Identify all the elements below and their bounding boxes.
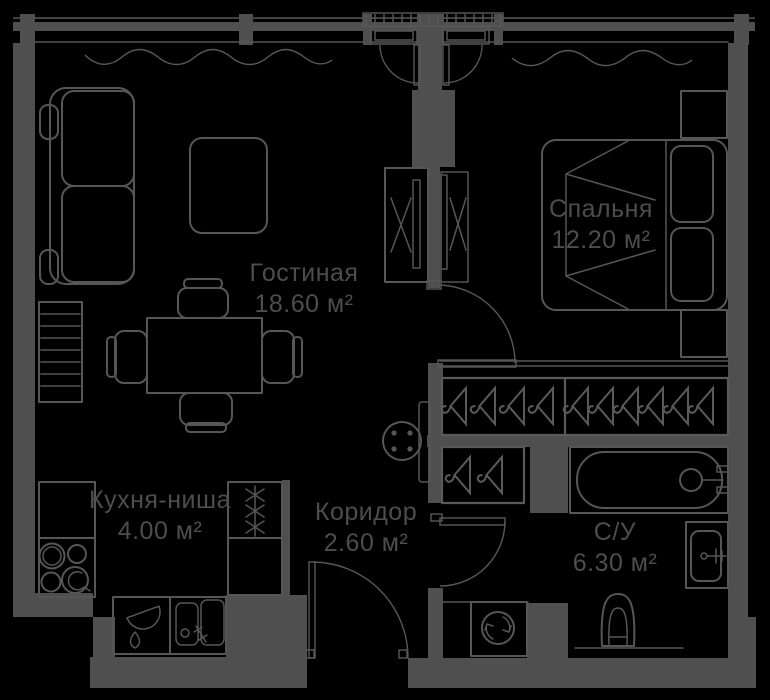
room-name: Кухня-ниша <box>75 485 245 516</box>
curtain-wave-icon <box>85 50 692 66</box>
radiator-icon <box>39 302 82 402</box>
room-name: Коридор <box>281 497 451 528</box>
round-stool-icon <box>383 402 430 482</box>
room-label-bedroom: Спальня 12.20 м² <box>516 194 686 256</box>
walls <box>13 14 756 688</box>
room-label-kitchen: Кухня-ниша 4.00 м² <box>75 485 245 547</box>
bathtub-icon <box>570 447 728 513</box>
sliding-wardrobe-icon <box>385 168 468 282</box>
sofa-icon <box>40 88 134 284</box>
toilet-icon <box>602 594 635 646</box>
floor-plan: Гостиная 18.60 м² Спальня 12.20 м² Кухня… <box>0 0 770 700</box>
nightstand-icon <box>681 91 727 357</box>
room-area: 6.30 м² <box>530 548 700 579</box>
room-label-living: Гостиная 18.60 м² <box>219 258 389 320</box>
floor-plan-drawing <box>0 0 770 700</box>
room-area: 18.60 м² <box>219 289 389 320</box>
coffee-table-icon <box>190 138 267 233</box>
stove-burners-icon <box>40 544 91 594</box>
washing-machine-icon <box>471 602 527 656</box>
room-area: 4.00 м² <box>75 516 245 547</box>
kitchen-sink-icon <box>127 600 224 648</box>
room-area: 2.60 м² <box>281 528 451 559</box>
room-name: Гостиная <box>219 258 389 289</box>
room-name: С/У <box>530 517 700 548</box>
room-label-corridor: Коридор 2.60 м² <box>281 497 451 559</box>
room-label-bathroom: С/У 6.30 м² <box>530 517 700 579</box>
room-area: 12.20 м² <box>516 225 686 256</box>
room-name: Спальня <box>516 194 686 225</box>
